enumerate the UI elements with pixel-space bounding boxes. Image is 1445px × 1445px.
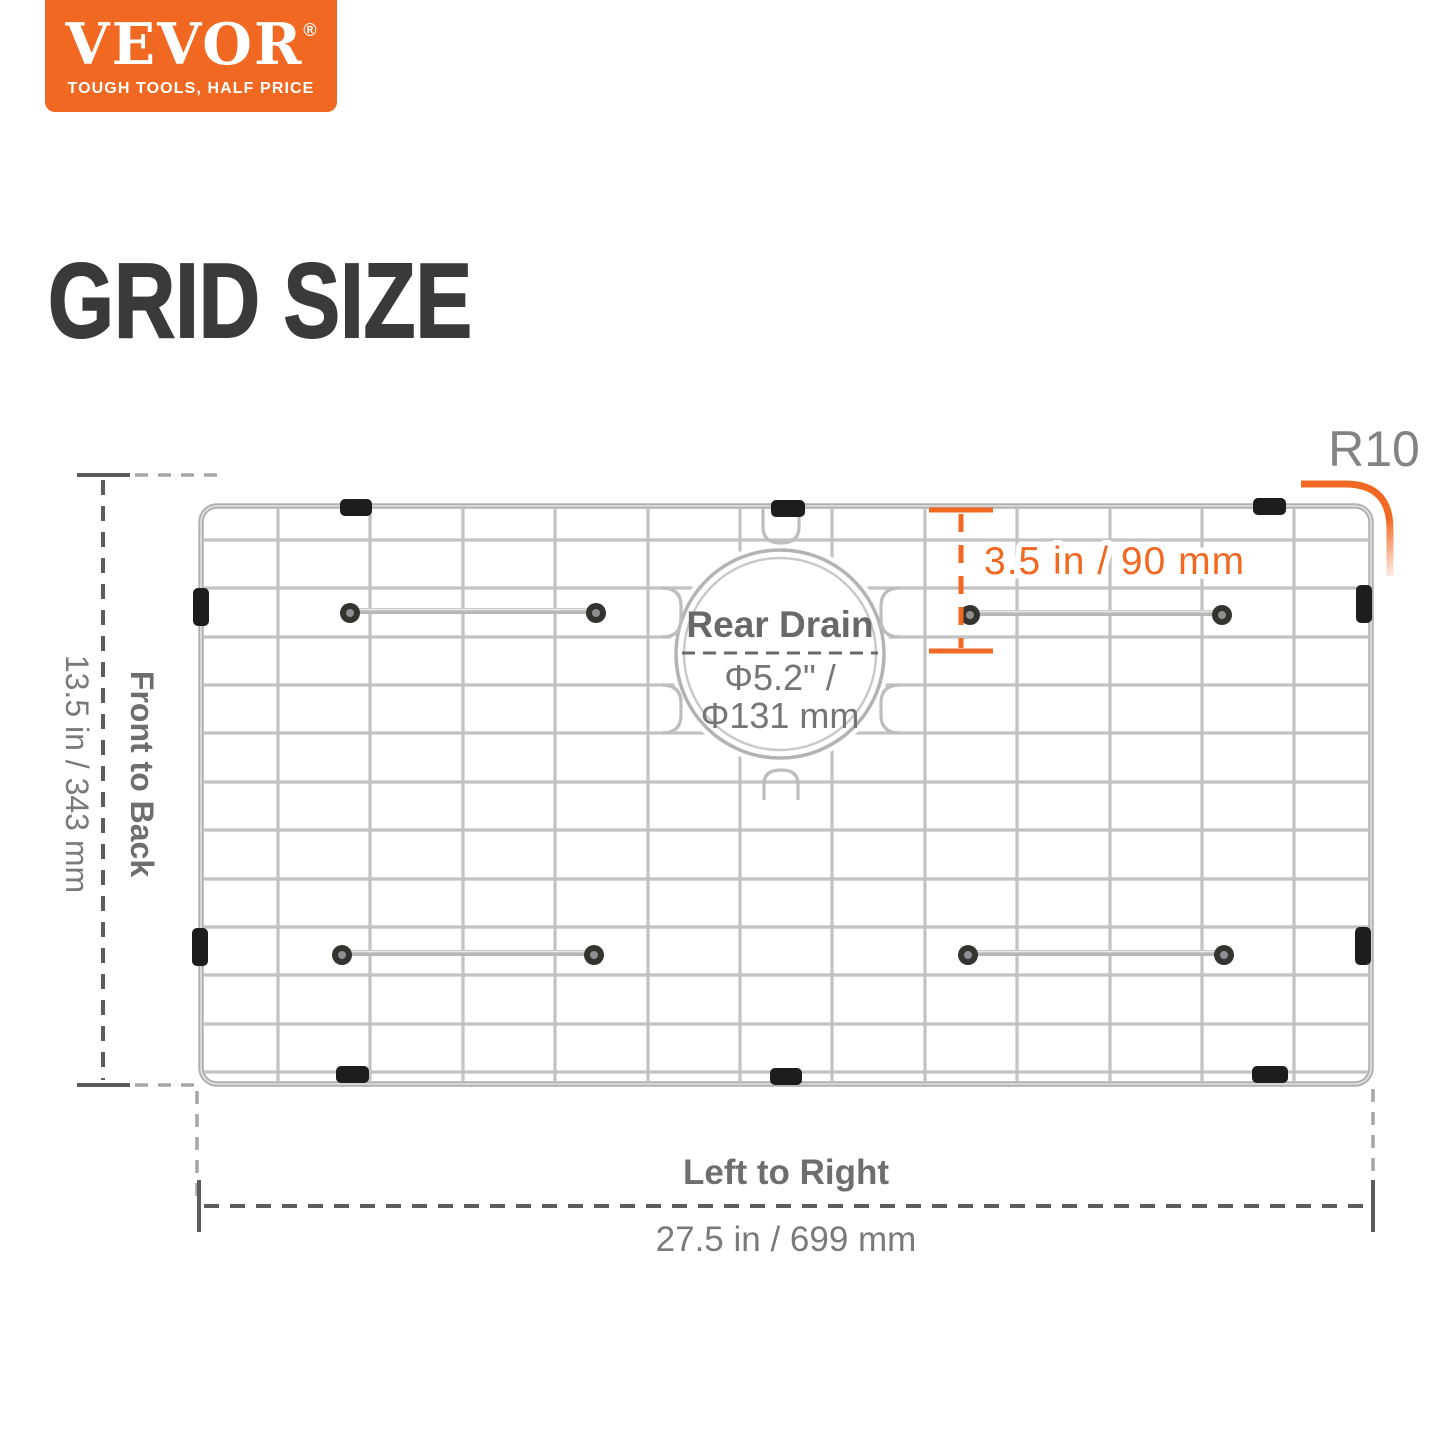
ltr-value: 27.5 in / 699 mm — [656, 1220, 917, 1259]
grid-diagram-svg: Rear Drain Φ5.2" / Φ131 mm 3.5 in / 90 m… — [0, 0, 1445, 1445]
drain-tab-right-lower — [881, 685, 900, 733]
ltr-label: Left to Right — [683, 1153, 889, 1192]
corner-radius-annotation: R10 — [1301, 421, 1420, 576]
offset-value: 3.5 in / 90 mm — [984, 540, 1245, 583]
drain-tab-right-upper — [881, 588, 900, 637]
drain-tab-bottom — [764, 770, 798, 800]
dimension-drain-offset: 3.5 in / 90 mm 3.5 in / 90 mm — [929, 510, 1245, 651]
drain-diameter-mm: Φ131 mm — [701, 695, 860, 736]
ftb-label: Front to Back — [124, 671, 160, 877]
drain-label: Rear Drain — [686, 604, 873, 645]
ftb-value: 13.5 in / 343 mm — [59, 655, 95, 893]
sink-grid — [192, 498, 1372, 1085]
corner-radius-label: R10 — [1328, 421, 1420, 477]
product-dimension-diagram: VEVOR® TOUGH TOOLS, HALF PRICE GRID SIZE — [0, 0, 1445, 1445]
drain-diameter-inch: Φ5.2" / — [724, 657, 836, 698]
corner-radius-arc — [1301, 484, 1390, 576]
dimension-left-to-right: Left to Right 27.5 in / 699 mm — [197, 1089, 1373, 1259]
drain-tab-left-lower — [662, 685, 681, 733]
